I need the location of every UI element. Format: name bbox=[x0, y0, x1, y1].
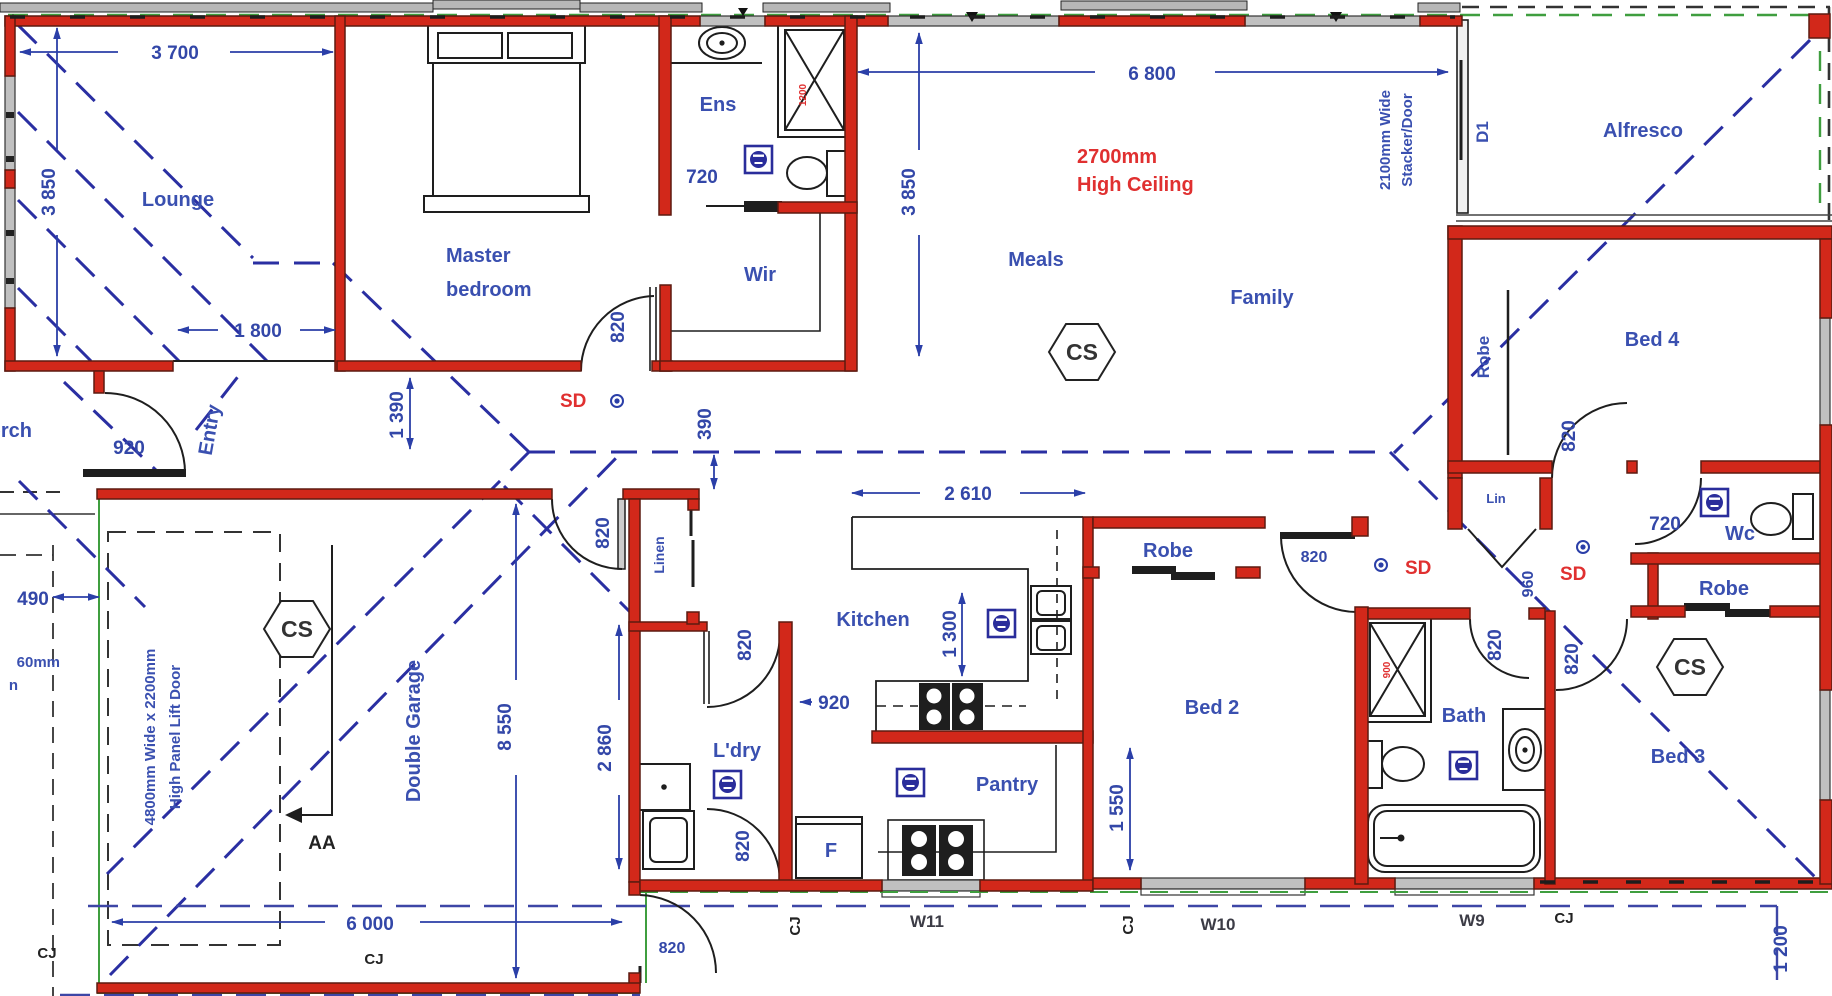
svg-text:1 200: 1 200 bbox=[1771, 925, 1792, 973]
svg-text:Wc: Wc bbox=[1725, 523, 1755, 545]
svg-text:820: 820 bbox=[608, 311, 629, 343]
svg-text:Robe: Robe bbox=[1143, 540, 1193, 562]
svg-text:820: 820 bbox=[735, 629, 756, 661]
svg-text:Kitchen: Kitchen bbox=[836, 609, 909, 631]
svg-text:2 860: 2 860 bbox=[595, 724, 616, 772]
svg-text:Pantry: Pantry bbox=[976, 774, 1039, 796]
svg-text:3 700: 3 700 bbox=[151, 43, 199, 64]
svg-text:1200: 1200 bbox=[798, 83, 809, 106]
svg-text:960: 960 bbox=[1520, 571, 1537, 598]
svg-text:Bed 4: Bed 4 bbox=[1625, 329, 1680, 351]
svg-text:1 300: 1 300 bbox=[940, 610, 961, 658]
svg-text:820: 820 bbox=[1485, 629, 1506, 661]
svg-text:900: 900 bbox=[1382, 661, 1393, 678]
svg-text:Double Garage: Double Garage bbox=[403, 660, 425, 802]
svg-text:820: 820 bbox=[659, 940, 686, 957]
svg-text:820: 820 bbox=[733, 830, 754, 862]
svg-text:CS: CS bbox=[1066, 339, 1098, 365]
svg-text:W9: W9 bbox=[1459, 911, 1485, 930]
svg-text:720: 720 bbox=[1649, 514, 1681, 535]
svg-text:W11: W11 bbox=[910, 912, 944, 931]
svg-text:Alfresco: Alfresco bbox=[1603, 120, 1683, 142]
svg-text:Meals: Meals bbox=[1008, 249, 1064, 271]
svg-text:Ens: Ens bbox=[700, 94, 737, 116]
svg-text:3 850: 3 850 bbox=[39, 168, 60, 216]
svg-text:bedroom: bedroom bbox=[446, 279, 532, 301]
svg-text:F: F bbox=[825, 840, 837, 862]
svg-text:2 610: 2 610 bbox=[944, 484, 992, 505]
svg-text:Lounge: Lounge bbox=[142, 189, 214, 211]
svg-text:Master: Master bbox=[446, 245, 511, 267]
svg-text:Stacker/Door: Stacker/Door bbox=[1399, 93, 1416, 187]
svg-text:Bath: Bath bbox=[1442, 705, 1486, 727]
svg-text:920: 920 bbox=[818, 693, 850, 714]
svg-text:SD: SD bbox=[560, 391, 586, 412]
svg-text:High Panel Lift Door: High Panel Lift Door bbox=[167, 665, 184, 809]
svg-text:720: 720 bbox=[686, 167, 718, 188]
svg-text:1 800: 1 800 bbox=[234, 321, 282, 342]
svg-text:AA: AA bbox=[308, 833, 336, 854]
svg-text:W10: W10 bbox=[1201, 915, 1236, 934]
svg-text:n: n bbox=[9, 677, 18, 694]
svg-text:6 000: 6 000 bbox=[346, 914, 394, 935]
svg-text:820: 820 bbox=[1559, 420, 1580, 452]
svg-text:Bed 2: Bed 2 bbox=[1185, 697, 1239, 719]
svg-text:820: 820 bbox=[1562, 643, 1583, 675]
svg-text:4800mm Wide x 2200mm: 4800mm Wide x 2200mm bbox=[142, 649, 159, 826]
svg-text:L'dry: L'dry bbox=[713, 740, 762, 762]
svg-text:CS: CS bbox=[1674, 654, 1706, 680]
svg-text:D1: D1 bbox=[1473, 121, 1492, 143]
svg-text:820: 820 bbox=[593, 517, 614, 549]
svg-text:CJ: CJ bbox=[37, 945, 56, 962]
svg-text:CJ: CJ bbox=[787, 916, 804, 935]
svg-text:920: 920 bbox=[113, 438, 145, 459]
svg-text:Linen: Linen bbox=[651, 536, 667, 573]
svg-text:2100mm Wide: 2100mm Wide bbox=[1377, 90, 1394, 190]
svg-text:Bed 3: Bed 3 bbox=[1651, 746, 1705, 768]
svg-text:6 800: 6 800 bbox=[1128, 64, 1176, 85]
svg-text:1 390: 1 390 bbox=[387, 391, 408, 439]
svg-text:Lin: Lin bbox=[1486, 491, 1506, 506]
svg-text:Porch: Porch bbox=[0, 420, 32, 442]
svg-text:Robe: Robe bbox=[1474, 336, 1493, 379]
svg-text:490: 490 bbox=[17, 589, 49, 610]
svg-text:CJ: CJ bbox=[1554, 910, 1573, 927]
svg-text:High Ceiling: High Ceiling bbox=[1077, 174, 1194, 196]
svg-text:390: 390 bbox=[695, 408, 716, 440]
svg-text:SD: SD bbox=[1405, 558, 1431, 579]
svg-text:CJ: CJ bbox=[364, 951, 383, 968]
svg-text:2700mm: 2700mm bbox=[1077, 146, 1157, 168]
svg-text:Wir: Wir bbox=[744, 264, 776, 286]
svg-text:CJ: CJ bbox=[1120, 915, 1137, 934]
svg-text:CS: CS bbox=[281, 616, 313, 642]
svg-text:60mm: 60mm bbox=[17, 654, 60, 671]
svg-text:820: 820 bbox=[1301, 549, 1328, 566]
svg-text:8 550: 8 550 bbox=[495, 703, 516, 751]
svg-text:SD: SD bbox=[1560, 564, 1586, 585]
svg-text:1 550: 1 550 bbox=[1107, 784, 1128, 832]
svg-text:3 850: 3 850 bbox=[899, 168, 920, 216]
svg-text:Family: Family bbox=[1230, 287, 1294, 309]
svg-text:Robe: Robe bbox=[1699, 578, 1749, 600]
